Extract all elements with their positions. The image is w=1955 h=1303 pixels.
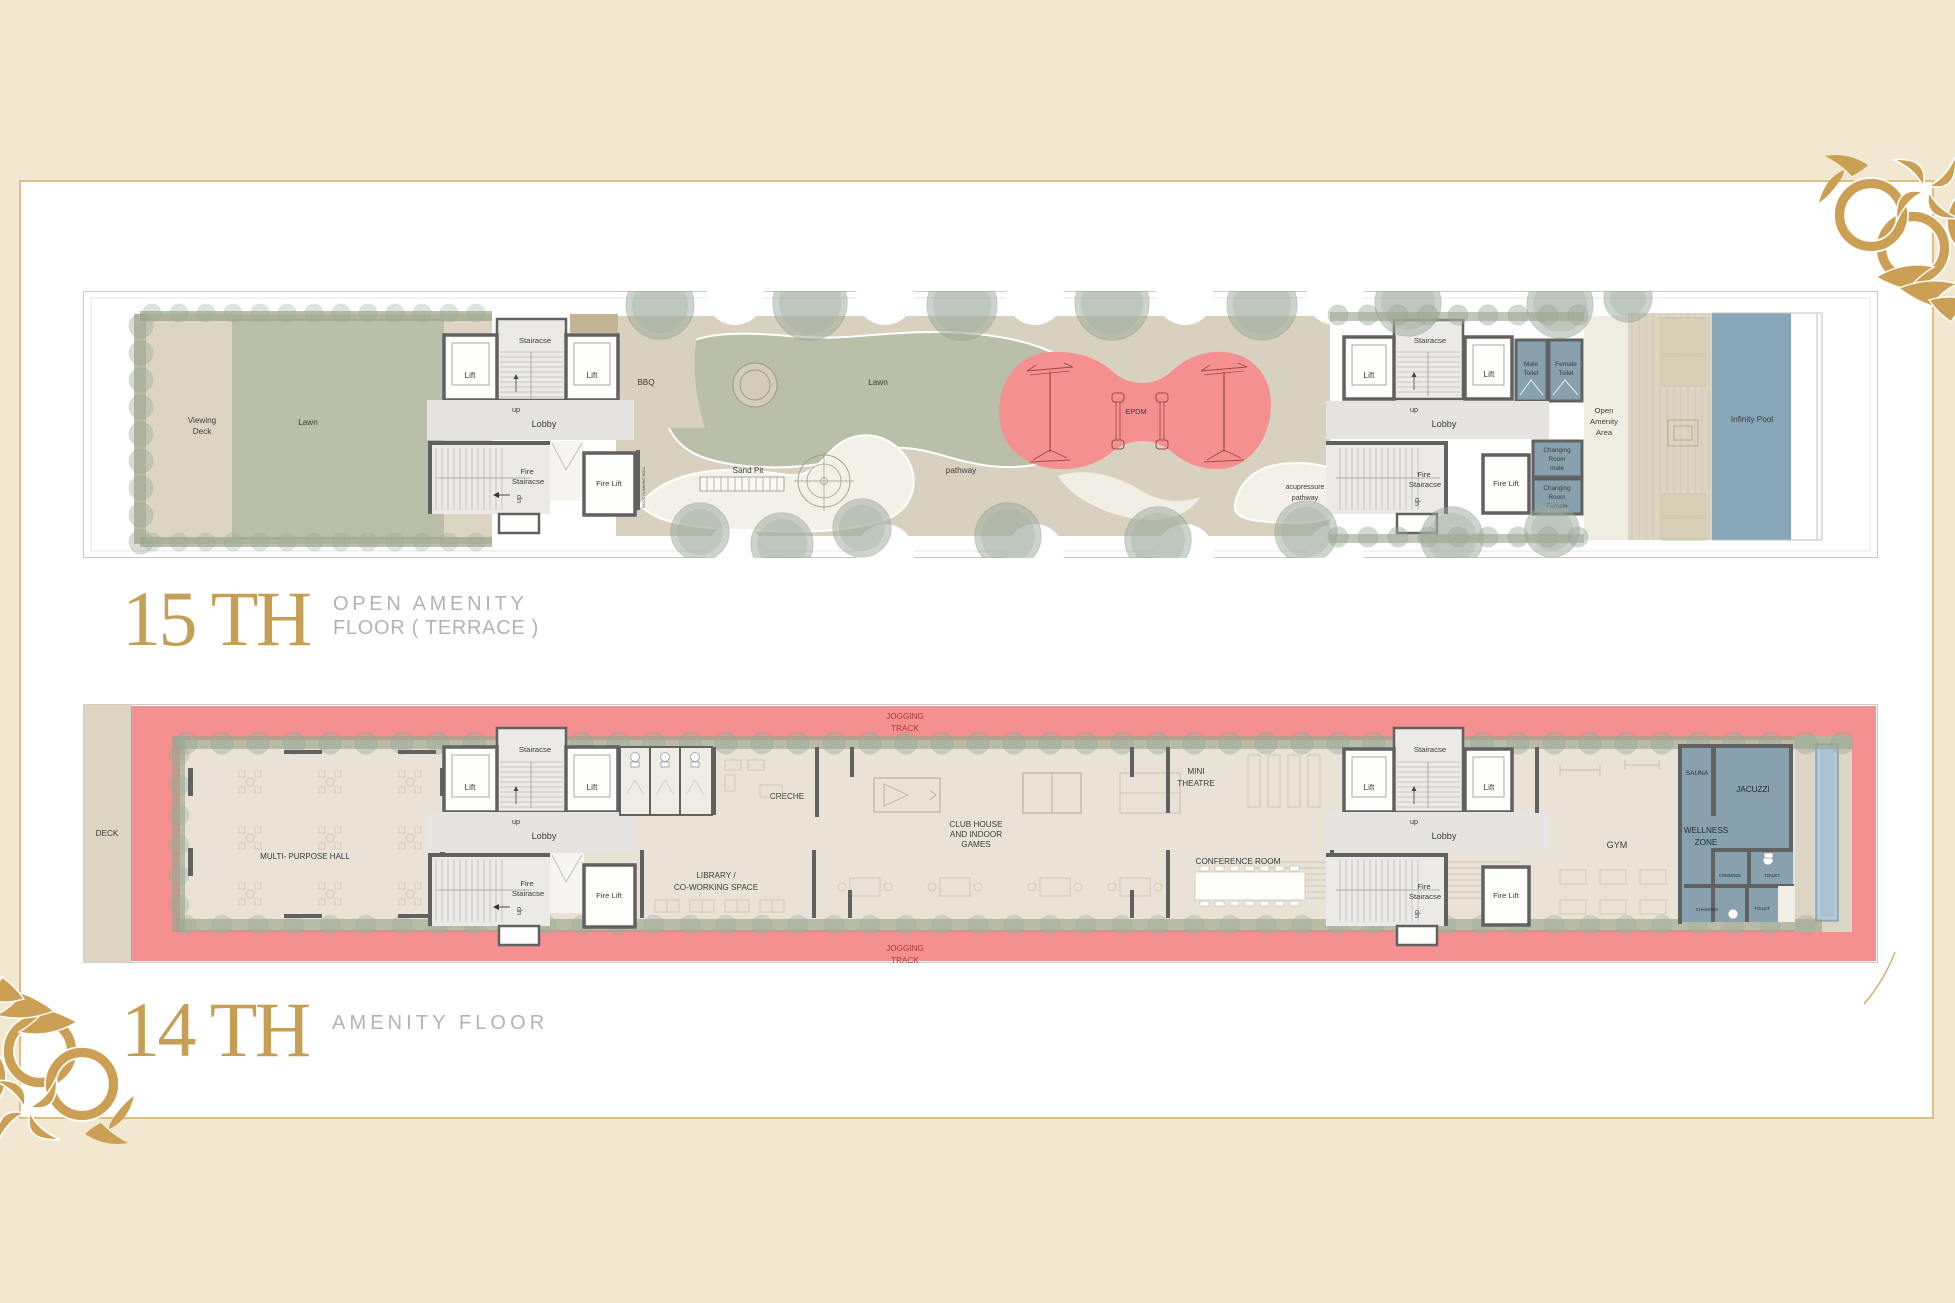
svg-text:Changing: Changing [1543,447,1571,454]
svg-text:Room: Room [1549,494,1566,501]
svg-text:SAUNA: SAUNA [1686,770,1709,777]
svg-text:Fire: Fire [1417,470,1430,479]
svg-text:Stairacse: Stairacse [519,745,551,754]
svg-text:Lobby: Lobby [532,419,557,429]
svg-text:Toilet: Toilet [1558,370,1573,377]
svg-text:MINI: MINI [1187,767,1204,776]
svg-text:Lobby: Lobby [532,831,557,841]
svg-text:up: up [512,817,520,826]
svg-text:Room: Room [1549,456,1566,463]
svg-text:Stairacse: Stairacse [512,477,544,486]
svg-text:Infinity Pool: Infinity Pool [1731,415,1773,424]
svg-text:Lift: Lift [1484,370,1496,379]
svg-text:Fire: Fire [1417,882,1430,891]
svg-text:Stairacse: Stairacse [512,889,544,898]
svg-text:CONFERENCE ROOM: CONFERENCE ROOM [1196,857,1281,866]
svg-text:Stairacse: Stairacse [519,336,551,345]
svg-text:BBQ: BBQ [637,378,654,387]
svg-text:Lift: Lift [465,371,477,380]
svg-text:AND INDOOR: AND INDOOR [950,830,1002,839]
svg-text:Fire: Fire [520,879,533,888]
svg-text:Stairacse: Stairacse [1414,745,1446,754]
svg-text:up: up [512,405,520,414]
svg-text:Fire Lift: Fire Lift [1493,891,1520,900]
svg-text:Lobby: Lobby [1432,419,1457,429]
svg-text:WELLNESS: WELLNESS [1684,826,1729,835]
svg-text:CLUB HOUSE: CLUB HOUSE [949,820,1003,829]
svg-text:CO-WORKING SPACE: CO-WORKING SPACE [674,883,759,892]
svg-text:Female: Female [1555,361,1577,368]
svg-text:TRACK: TRACK [891,724,919,733]
svg-text:EPDM: EPDM [1125,407,1147,416]
svg-text:up: up [1412,498,1421,506]
svg-text:Toilet: Toilet [1523,370,1538,377]
svg-text:Lawn: Lawn [868,378,888,387]
svg-text:up: up [514,907,523,915]
svg-text:Lobby: Lobby [1432,831,1457,841]
svg-text:Fire: Fire [520,467,533,476]
svg-text:ROCK CLIMBING WALL: ROCK CLIMBING WALL [642,466,646,508]
svg-text:up: up [1412,910,1421,918]
svg-text:TRACK: TRACK [891,956,919,963]
svg-text:CHANGING: CHANGING [1696,907,1719,912]
svg-text:Lift: Lift [1364,371,1376,380]
svg-text:ZONE: ZONE [1695,838,1718,847]
svg-text:Deck: Deck [193,427,213,436]
svg-text:Fire Lift: Fire Lift [1493,479,1520,488]
svg-text:Viewing: Viewing [188,416,217,425]
svg-text:up: up [1410,405,1418,414]
svg-text:Changing: Changing [1543,485,1571,492]
svg-text:CRECHE: CRECHE [770,792,805,801]
svg-text:JOGGING: JOGGING [886,712,924,721]
svg-text:JACUZZI: JACUZZI [1736,785,1770,794]
svg-text:pathway: pathway [946,466,977,475]
svg-text:COMMODE: COMMODE [1719,873,1742,878]
svg-text:Lift: Lift [587,371,599,380]
svg-text:Male: Male [1524,361,1539,368]
svg-text:Lift: Lift [1364,783,1376,792]
svg-text:Fire Lift: Fire Lift [596,891,623,900]
svg-text:TOILET: TOILET [1764,873,1780,878]
svg-text:Stairacse: Stairacse [1409,892,1441,901]
svg-text:GAMES: GAMES [961,840,991,849]
svg-text:JOGGING: JOGGING [886,944,924,953]
svg-text:up: up [514,495,523,503]
svg-text:Lift: Lift [1484,783,1496,792]
svg-text:Sand Pit: Sand Pit [733,466,765,475]
svg-text:TOILET: TOILET [1754,906,1770,911]
svg-text:Amenity: Amenity [1590,417,1618,426]
svg-text:Lift: Lift [587,783,599,792]
svg-text:Fire Lift: Fire Lift [596,479,623,488]
svg-text:Lift: Lift [465,783,477,792]
svg-text:DECK: DECK [96,829,119,838]
svg-text:acupressure: acupressure [1285,483,1324,491]
svg-text:up: up [1410,817,1418,826]
svg-text:Stairacse: Stairacse [1414,336,1446,345]
svg-text:LIBRARY /: LIBRARY / [696,871,736,880]
svg-text:THEATRE: THEATRE [1177,779,1215,788]
svg-text:male: male [1550,465,1564,472]
svg-text:Open: Open [1595,406,1614,415]
svg-text:MULTI- PURPOSE HALL: MULTI- PURPOSE HALL [260,852,350,861]
svg-text:Area: Area [1596,428,1613,437]
svg-text:GYM: GYM [1607,840,1628,850]
svg-text:Stairacse: Stairacse [1409,480,1441,489]
svg-text:Lawn: Lawn [298,418,318,427]
